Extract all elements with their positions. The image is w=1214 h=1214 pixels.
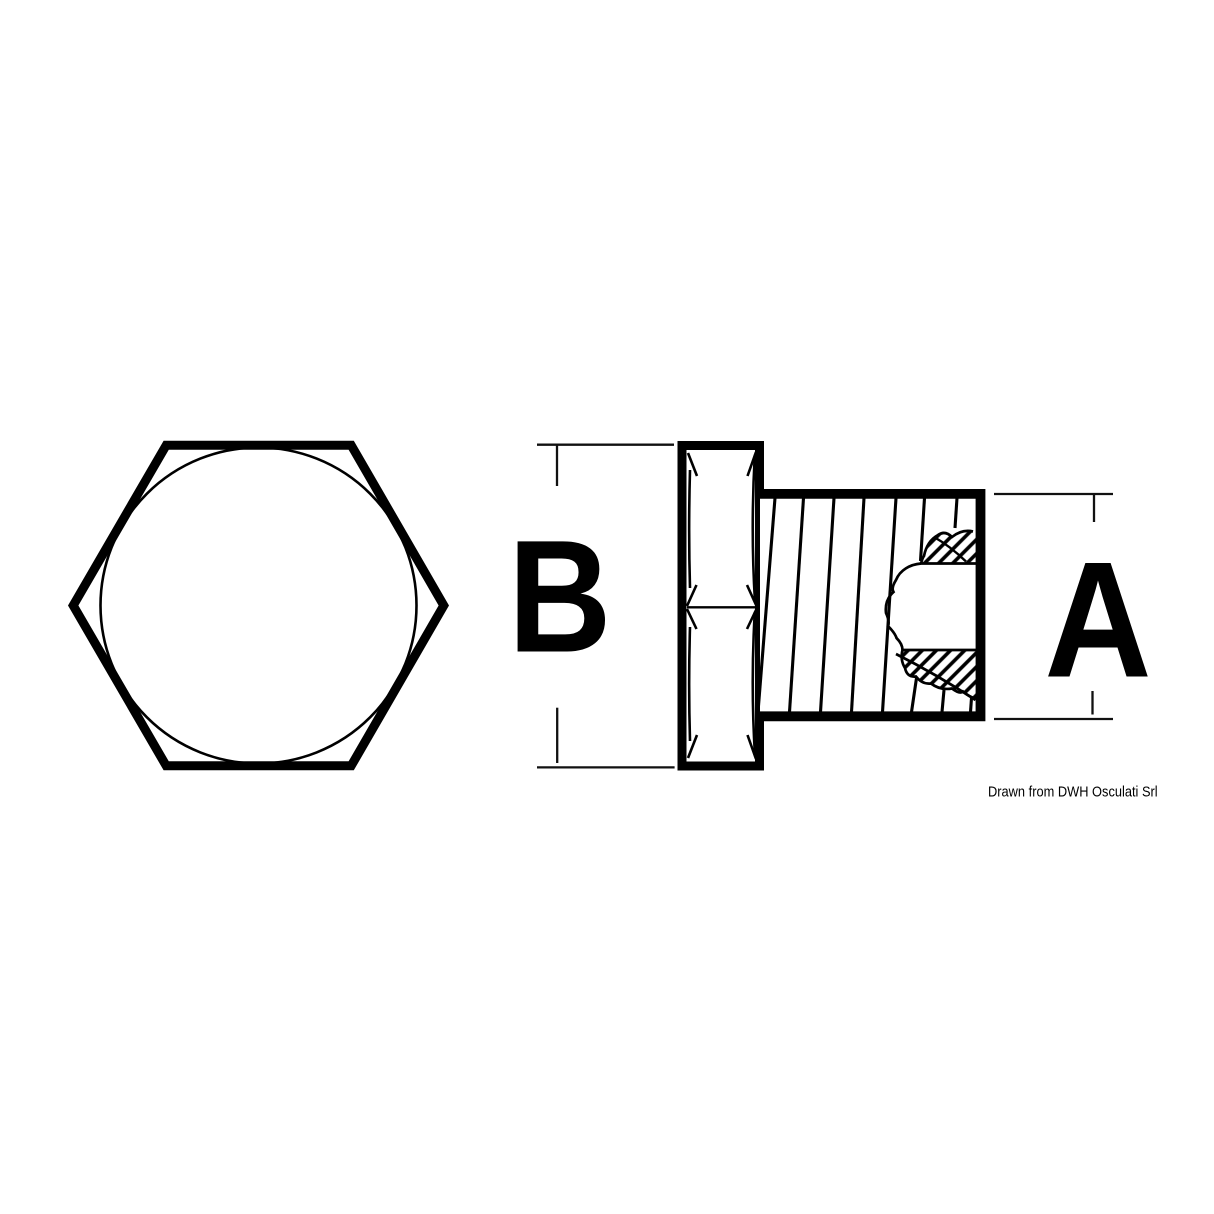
svg-text:B: B <box>508 507 612 686</box>
svg-text:A: A <box>1044 528 1151 712</box>
svg-text:Drawn from DWH Osculati Srl: Drawn from DWH Osculati Srl <box>988 784 1158 800</box>
